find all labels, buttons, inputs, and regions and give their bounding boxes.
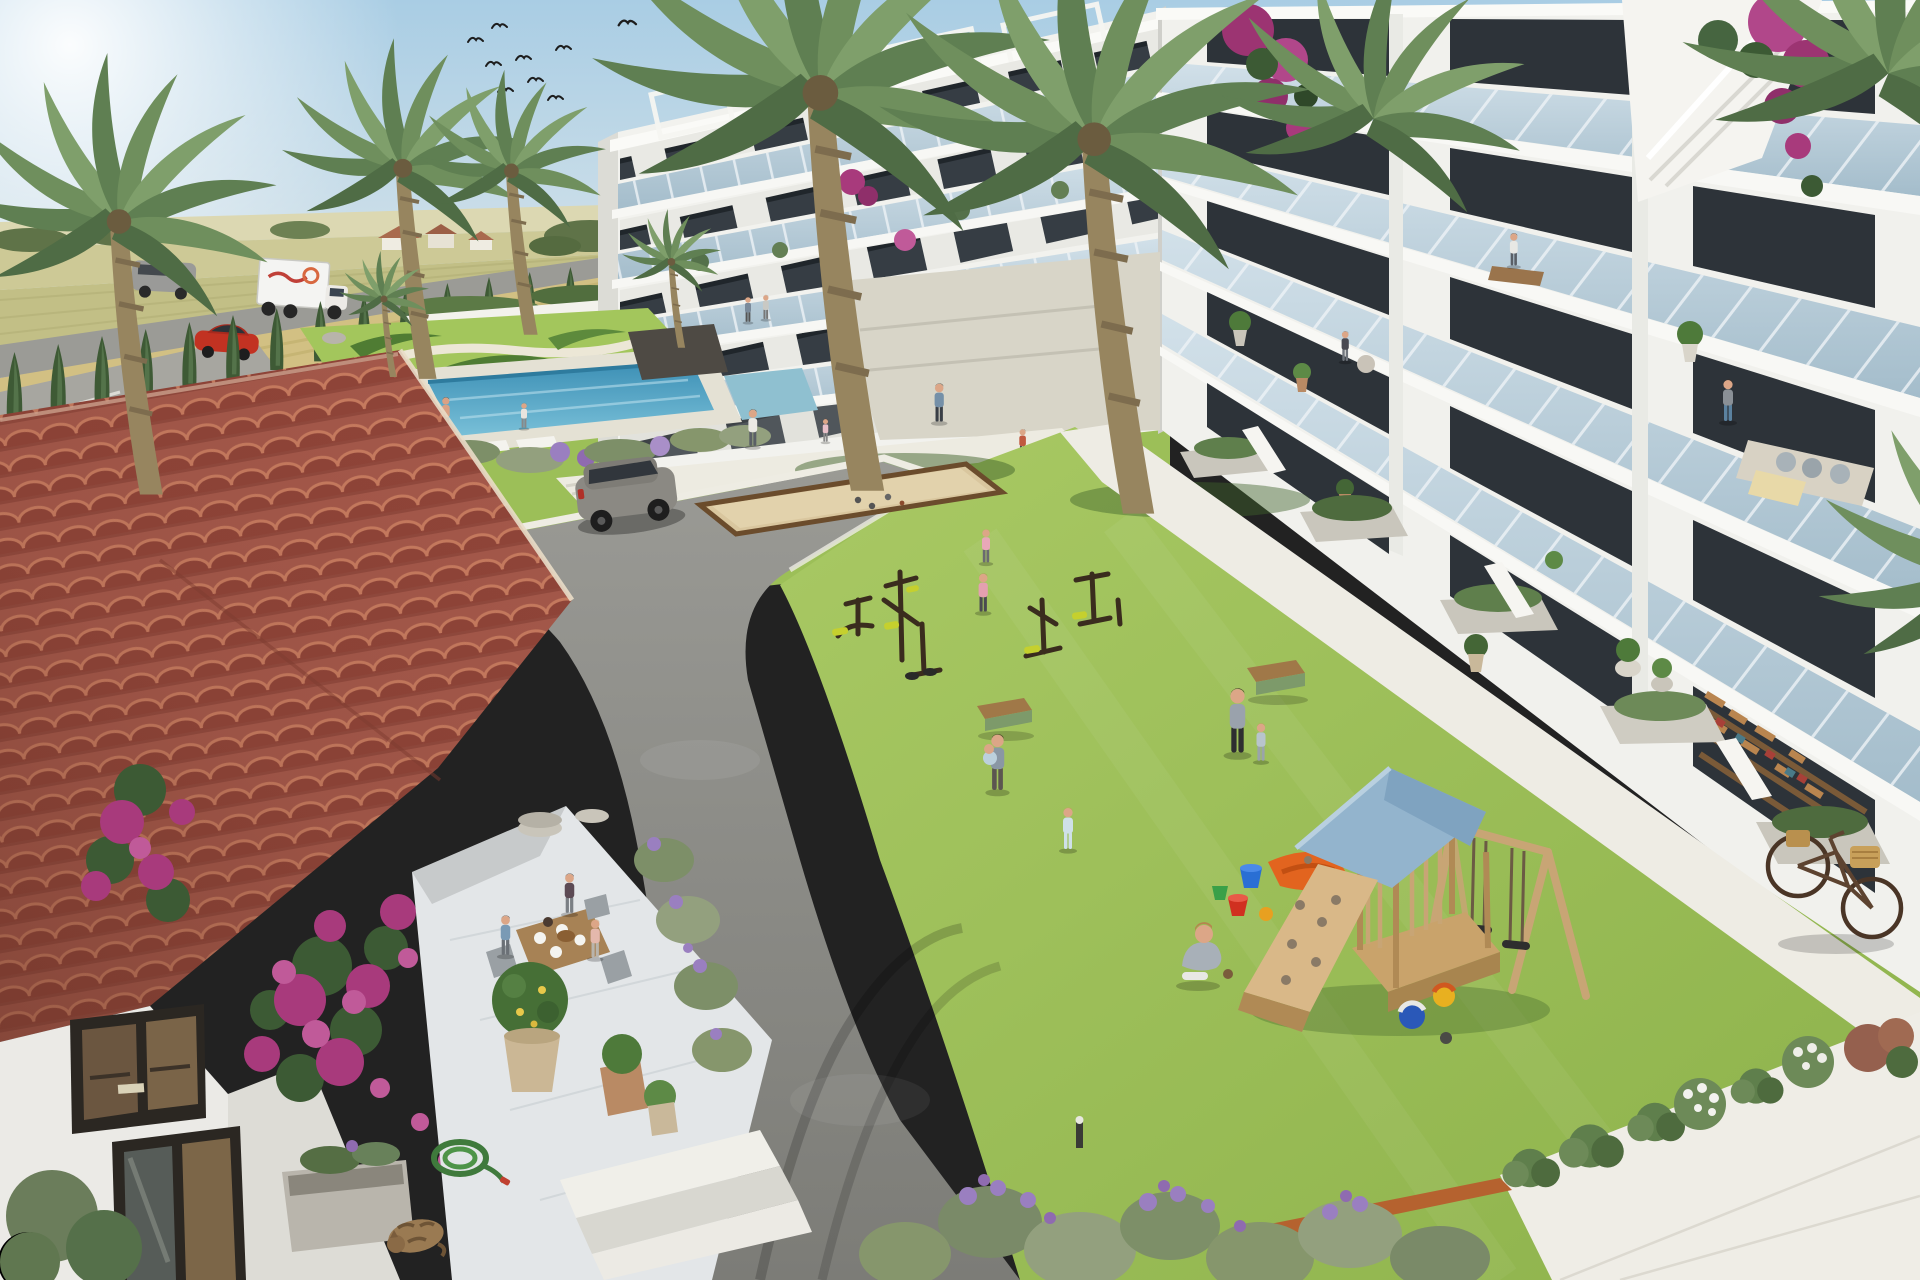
scene-svg (0, 0, 1920, 1280)
rendered-image (0, 0, 1920, 1280)
villa-window (70, 1004, 206, 1134)
